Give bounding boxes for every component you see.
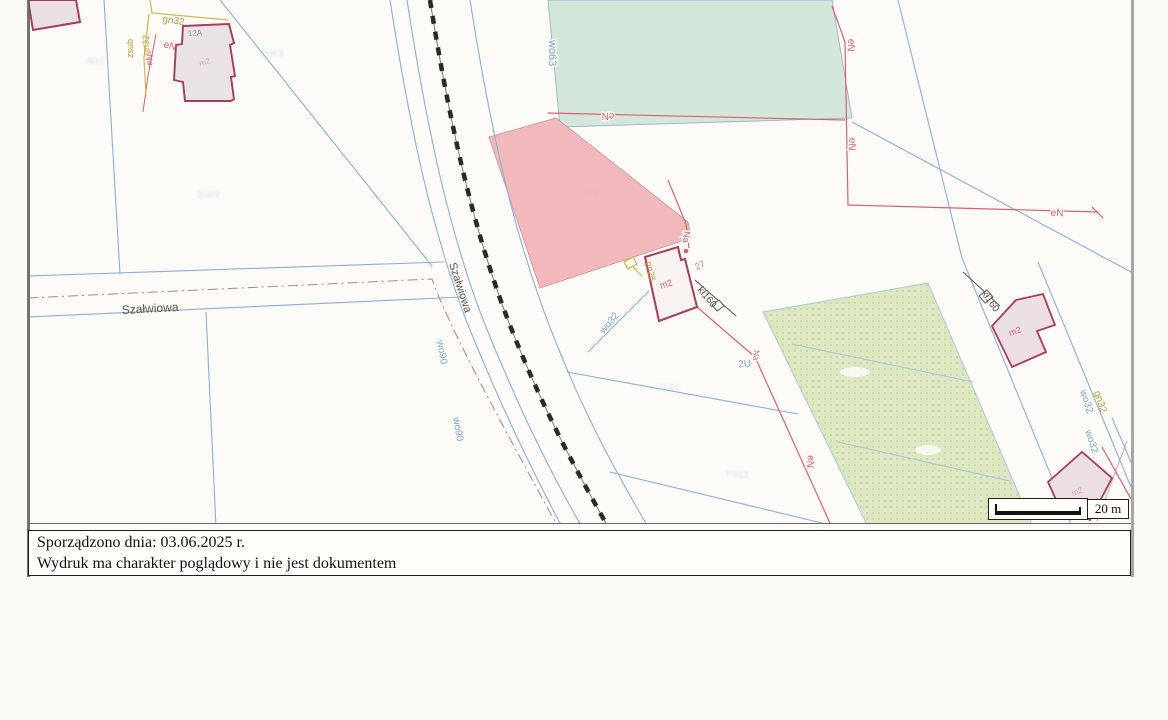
erased-label-patch xyxy=(915,445,941,455)
page-edge-left xyxy=(27,0,30,577)
faint-parcel-label: 204/3 xyxy=(261,48,284,58)
faint-parcel-label: 204/4 xyxy=(197,190,220,200)
label-en-right-horizontal: eN xyxy=(1051,208,1064,219)
cadastral-map: gn32zsubgn32eNeN12Am2wo63eNeNeNeNNa27m2k… xyxy=(0,0,1168,720)
label-en-green-bottom: eN xyxy=(602,110,615,121)
label-na-lower: Na xyxy=(751,350,761,362)
faint-parcel-label: 77/12 xyxy=(726,470,749,480)
footer-date-line: Sporządzono dnia: 03.06.2025 r. xyxy=(37,532,1122,553)
power-connection-point xyxy=(684,249,689,254)
label-house-number-12a: 12A xyxy=(188,28,203,38)
faint-parcel-label: 77/4 xyxy=(582,189,600,199)
erased-label-patch xyxy=(840,367,870,377)
scale-bar-tick-right xyxy=(1079,507,1081,515)
footer-disclaimer-line: Wydruk ma charakter poglądowy i nie jest… xyxy=(37,553,1122,574)
footer-note: Sporządzono dnia: 03.06.2025 r. Wydruk m… xyxy=(28,530,1131,576)
map-frame-bottom xyxy=(28,523,1131,524)
label-zsub-vertical: zsub xyxy=(125,39,135,58)
label-wo63: wo63 xyxy=(546,39,558,66)
label-en-lower: eN xyxy=(804,455,816,469)
scanned-page: gn32zsubgn32eNeN12Am2wo63eNeNeNeNNa27m2k… xyxy=(0,0,1168,720)
label-2u: 2U xyxy=(738,358,752,370)
label-en-right-mid: eN xyxy=(845,137,857,151)
scale-bar-label: 20 m xyxy=(1087,499,1129,519)
scale-bar-tick-left xyxy=(995,504,997,515)
faint-parcel-label: 60/2 xyxy=(87,56,105,66)
label-gn32-vertical: gn32 xyxy=(141,35,151,55)
faint-parcel-label: 77/10 xyxy=(657,383,680,393)
scale-bar-box xyxy=(988,498,1088,520)
label-en-right-upper: eN xyxy=(844,38,856,52)
green-area-top xyxy=(548,0,852,127)
label-street-horizontal: Szałwiowa xyxy=(121,300,179,317)
page-edge-right xyxy=(1131,0,1134,577)
label-en-topleft-2: eN xyxy=(144,54,155,66)
scale-bar: 20 m xyxy=(988,498,1129,520)
label-na-mid: Na xyxy=(681,231,692,243)
scale-bar-line xyxy=(995,511,1081,515)
